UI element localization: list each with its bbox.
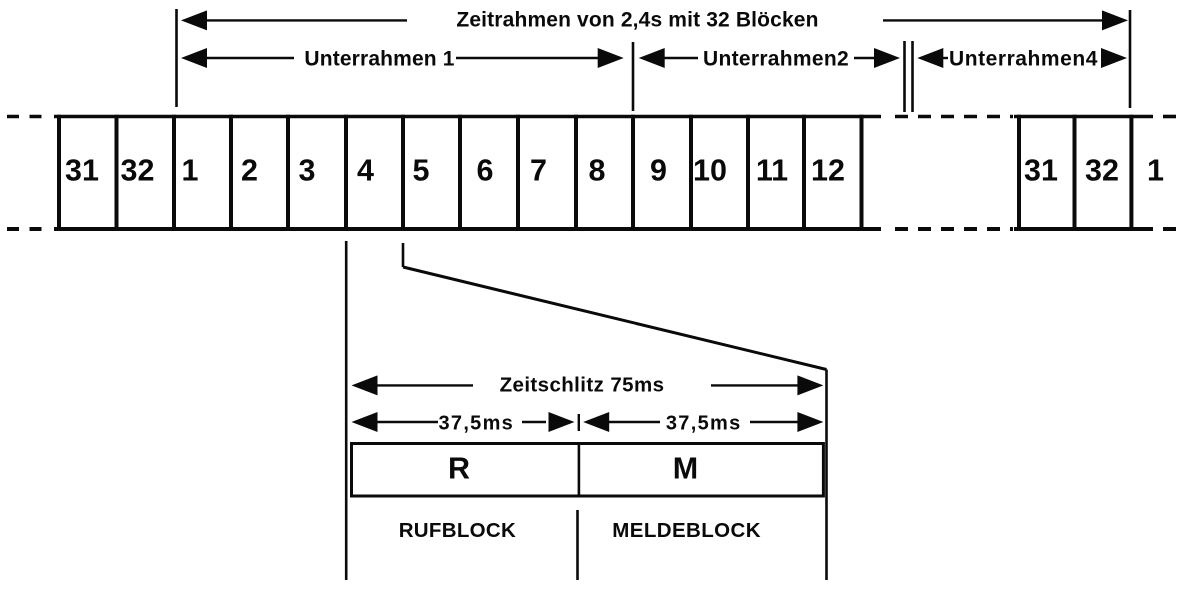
- svg-text:32: 32: [1085, 154, 1119, 188]
- svg-text:Zeitschlitz 75ms: Zeitschlitz 75ms: [500, 373, 665, 396]
- svg-text:8: 8: [589, 154, 606, 188]
- svg-text:11: 11: [756, 154, 788, 188]
- svg-text:1: 1: [1147, 154, 1164, 188]
- svg-text:MELDEBLOCK: MELDEBLOCK: [612, 519, 761, 542]
- svg-text:37,5ms: 37,5ms: [666, 412, 742, 434]
- svg-text:1: 1: [182, 154, 199, 188]
- svg-text:2: 2: [241, 154, 258, 188]
- svg-text:5: 5: [413, 154, 430, 188]
- svg-text:Unterrahmen 1: Unterrahmen 1: [304, 48, 454, 71]
- svg-text:RUFBLOCK: RUFBLOCK: [399, 519, 516, 542]
- svg-text:12: 12: [811, 154, 845, 188]
- svg-text:31: 31: [1024, 154, 1058, 188]
- svg-text:Unterrahmen4: Unterrahmen4: [949, 48, 1098, 71]
- svg-text:R: R: [448, 452, 470, 486]
- svg-text:Unterrahmen2: Unterrahmen2: [703, 48, 849, 71]
- svg-text:4: 4: [357, 154, 374, 188]
- svg-text:37,5ms: 37,5ms: [438, 412, 514, 434]
- svg-text:9: 9: [650, 154, 667, 188]
- svg-text:3: 3: [299, 154, 316, 188]
- svg-text:32: 32: [121, 154, 155, 188]
- svg-text:10: 10: [693, 154, 727, 188]
- svg-text:Zeitrahmen von 2,4s mit 32 Blö: Zeitrahmen von 2,4s mit 32 Blöcken: [456, 8, 818, 31]
- svg-text:M: M: [673, 452, 698, 486]
- svg-text:7: 7: [530, 154, 547, 188]
- svg-text:31: 31: [65, 154, 99, 188]
- svg-text:6: 6: [477, 154, 494, 188]
